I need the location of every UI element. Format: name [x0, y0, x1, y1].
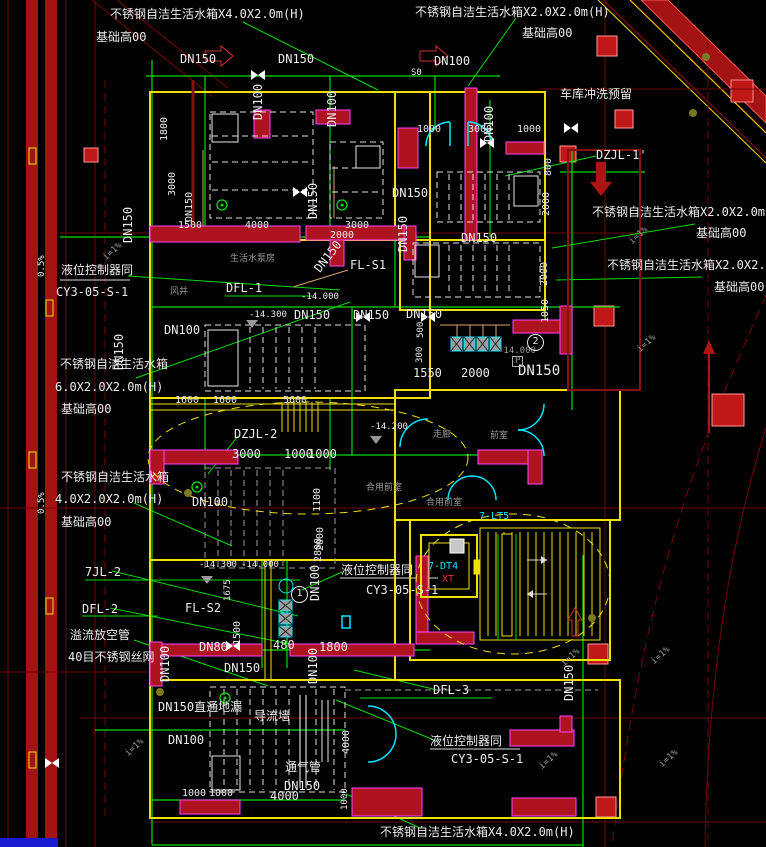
label-base-height: 基础高00 — [96, 31, 146, 44]
float-valve — [212, 114, 238, 142]
road-left — [8, 0, 66, 847]
label-circle-1: 1 — [291, 586, 308, 603]
label-dn100-vert: DN100 — [252, 84, 265, 120]
tank-right-upper — [437, 172, 540, 222]
label-slope-05: 0.5% — [38, 255, 47, 277]
flow-arrow-up — [568, 608, 582, 636]
label-dim-3000: 3000 — [232, 448, 261, 461]
label-dfl1: DFL-1 — [226, 282, 262, 295]
label-shared-front-room: 合用前室 — [366, 484, 402, 493]
label-dim-4000: 4000 — [245, 221, 269, 232]
label-dim-5600: 5600 — [283, 396, 307, 407]
label-dn100: DN100 — [164, 324, 200, 337]
label-tank-right-1: 不锈钢自洁生活水箱X2.0X2.0m(H) — [592, 206, 766, 219]
label-dim-3000-vert: 3000 — [168, 172, 179, 196]
status-bar-fragment — [0, 838, 58, 847]
label-dim-1800: 1800 — [319, 641, 348, 654]
flow-arrow-down — [590, 162, 612, 196]
column — [731, 80, 753, 102]
label-dn100-vert: DN100 — [159, 646, 172, 682]
label-dn100: DN100 — [434, 55, 470, 68]
label-elev-14300: -14.300 — [249, 311, 287, 320]
road-arrow — [703, 340, 715, 354]
label-dn150-vert: DN150 — [122, 207, 135, 243]
cad-canvas[interactable]: 不锈钢自洁生活水箱X4.0X2.0m(H) 基础高00 DN150 DN150 … — [0, 0, 766, 847]
tank-mid-left — [205, 325, 365, 391]
label-elev-14300: -14.300 — [199, 561, 237, 570]
label-air-shaft: 风井 — [170, 288, 188, 297]
label-dim-2000: 2000 — [461, 367, 490, 380]
label-dn150: DN150 — [392, 187, 428, 200]
label-elev-14200: -14.200 — [370, 423, 408, 432]
label-tank-right-2: 不锈钢自洁生活水箱X2.0X2.0m(H) — [607, 259, 766, 272]
label-dim-800-vert: 800 — [544, 158, 555, 176]
label-elev-14000: -14.000 — [241, 561, 279, 570]
stair-top-middle — [282, 402, 318, 432]
label-dn150-large: DN150 — [518, 364, 560, 379]
label-dim-1000: 1000 — [209, 789, 233, 800]
label-dim-1000: 1000 — [517, 125, 541, 136]
label-dim-1000: 1000 — [417, 125, 441, 136]
label-shared-front-room: 合用前室 — [426, 499, 462, 508]
label-garage-flush: 车库冲洗预留 — [560, 88, 632, 101]
label-base-height: 基础高00 — [61, 403, 111, 416]
label-elev-14000: -14.000 — [301, 293, 339, 302]
doors — [342, 122, 544, 762]
label-level-controller-2: 液位控制器同 — [341, 564, 413, 577]
pump-group-horizontal — [451, 337, 501, 351]
label-dim-300-vert: 300 — [416, 347, 425, 363]
label-dn150: DN150 — [294, 309, 330, 322]
label-dzjl2: DZJL-2 — [234, 428, 277, 441]
label-dim-1100-vert: 1100 — [313, 488, 324, 512]
label-dn150: DN150 — [278, 53, 314, 66]
label-dzjl1: DZJL-1' — [596, 149, 647, 162]
label-base-height: 基础高00 — [714, 281, 764, 294]
label-dn150-vert: DN150 — [563, 665, 576, 701]
label-dn150: DN150 — [180, 53, 216, 66]
label-dn150-vert: DN150 — [185, 192, 196, 222]
pipes-green — [60, 60, 645, 847]
label-overflow-pipe: 溢流放空管 — [70, 629, 130, 642]
label-dim-2000-vert: 2000 — [316, 527, 327, 551]
label-base-height: 基础高00 — [61, 516, 111, 529]
label-dim-480: 480 — [273, 639, 295, 652]
pump-group-vertical — [279, 579, 293, 637]
label-elevator-7dt4: 7-DT4 — [428, 562, 458, 573]
label-p-marker: P — [512, 356, 523, 367]
label-tank-top-left: 不锈钢自洁生活水箱X4.0X2.0m(H) — [110, 8, 305, 21]
float-valve — [356, 146, 380, 168]
label-cy-model-2: CY3-05-S-1 — [366, 584, 438, 597]
label-level-controller-3: 液位控制器同 — [430, 735, 502, 748]
fixture — [208, 330, 238, 386]
float-valve — [514, 176, 538, 206]
label-dn80: DN80 — [199, 641, 228, 654]
label-dim-1000: 1000 — [308, 448, 337, 461]
label-drain-direct: DN150直通地漏 — [158, 701, 242, 714]
label-dim-1500-vert: 1500 — [233, 621, 244, 645]
label-mesh40: 40目不锈钢丝网 — [68, 651, 154, 664]
fixture — [212, 756, 240, 790]
label-7jl2: 7JL-2 — [85, 566, 121, 579]
label-vent-pipe: 通气管 — [285, 761, 321, 774]
label-dn150-vert: DN150 — [307, 183, 320, 219]
label-dn150: DN150 — [461, 232, 497, 245]
label-stair-7lt5: 7-LT5 — [479, 512, 509, 523]
label-dn100-vert: DN100 — [307, 648, 320, 684]
label-dn100: DN100 — [192, 496, 228, 509]
label-tank-top-right: 不锈钢自洁生活水箱X2.0X2.0m(H) — [415, 6, 610, 19]
label-elevator-xt: XT — [442, 575, 454, 586]
label-pump-room: 生活水泵房 — [230, 255, 275, 264]
label-s0: S0 — [411, 69, 422, 78]
label-dim-2000-vert: 2000 — [540, 262, 551, 286]
label-slope-05: 0.5% — [38, 492, 47, 514]
label-dim-1675-vert: 1675 — [224, 579, 233, 601]
label-dn100-vert: DN100 — [483, 106, 496, 142]
label-dim-500-vert: 500 — [417, 322, 426, 338]
label-dim-1000: 1000 — [182, 789, 206, 800]
label-fls1: FL-S1 — [350, 259, 386, 272]
label-cy-model-3: CY3-05-S-1 — [451, 753, 523, 766]
label-dn150: DN150 — [353, 309, 389, 322]
label-base-height: 基础高00 — [696, 227, 746, 240]
label-dn100-vert: DN100 — [309, 565, 322, 601]
label-dim-1050-vert: 1050 — [541, 299, 552, 323]
label-tank-mid-left-size: 6.0X2.0X2.0m(H) — [55, 381, 163, 394]
label-dn150-vert: DN150 — [113, 334, 126, 370]
label-tank-lower-left: 不锈钢自洁生活水箱 — [61, 471, 169, 484]
label-dim-1500: 1500 — [178, 221, 202, 232]
label-fls2: FL-S2 — [185, 602, 221, 615]
label-tank-bottom: 不锈钢自洁生活水箱X4.0X2.0m(H) — [380, 826, 575, 839]
label-divert-wall: 导流墙 — [254, 710, 290, 723]
label-circle-2: 2 — [527, 334, 544, 351]
label-corridor: 走廊 — [433, 431, 451, 440]
label-dim-1800-vert: 1800 — [160, 117, 171, 141]
label-dn150: DN150 — [224, 662, 260, 675]
label-tank-lower-left-size: 4.0X2.0X2.0m(H) — [55, 493, 163, 506]
tank-right-lower — [413, 243, 540, 297]
label-dim-1600: 1600 — [175, 396, 199, 407]
label-dn150-vert: DN150 — [397, 216, 410, 252]
label-dim-4000-vert: 4000 — [342, 730, 353, 754]
road-diagonal-top-right — [598, 0, 766, 163]
float-valve — [415, 245, 439, 277]
label-dim-1550: 1550 — [413, 367, 442, 380]
label-level-controller-1: 液位控制器同 — [61, 264, 133, 277]
label-base-height: 基础高00 — [522, 27, 572, 40]
label-dn100-vert: DN100 — [326, 91, 339, 127]
label-dn150: DN150 — [406, 308, 442, 321]
label-cy-model-1: CY3-05-S-1 — [56, 286, 128, 299]
label-dfl3: DFL-3 — [433, 684, 469, 697]
label-dn100: DN100 — [168, 734, 204, 747]
label-dim-4000: 4000 — [270, 790, 299, 803]
label-dim-1600: 1600 — [213, 396, 237, 407]
label-dim-2000-vert: 2000 — [542, 192, 553, 216]
label-dim-1000-vert: 1000 — [341, 788, 350, 810]
label-front-room: 前室 — [490, 432, 508, 441]
label-dfl2: DFL-2 — [82, 603, 118, 616]
